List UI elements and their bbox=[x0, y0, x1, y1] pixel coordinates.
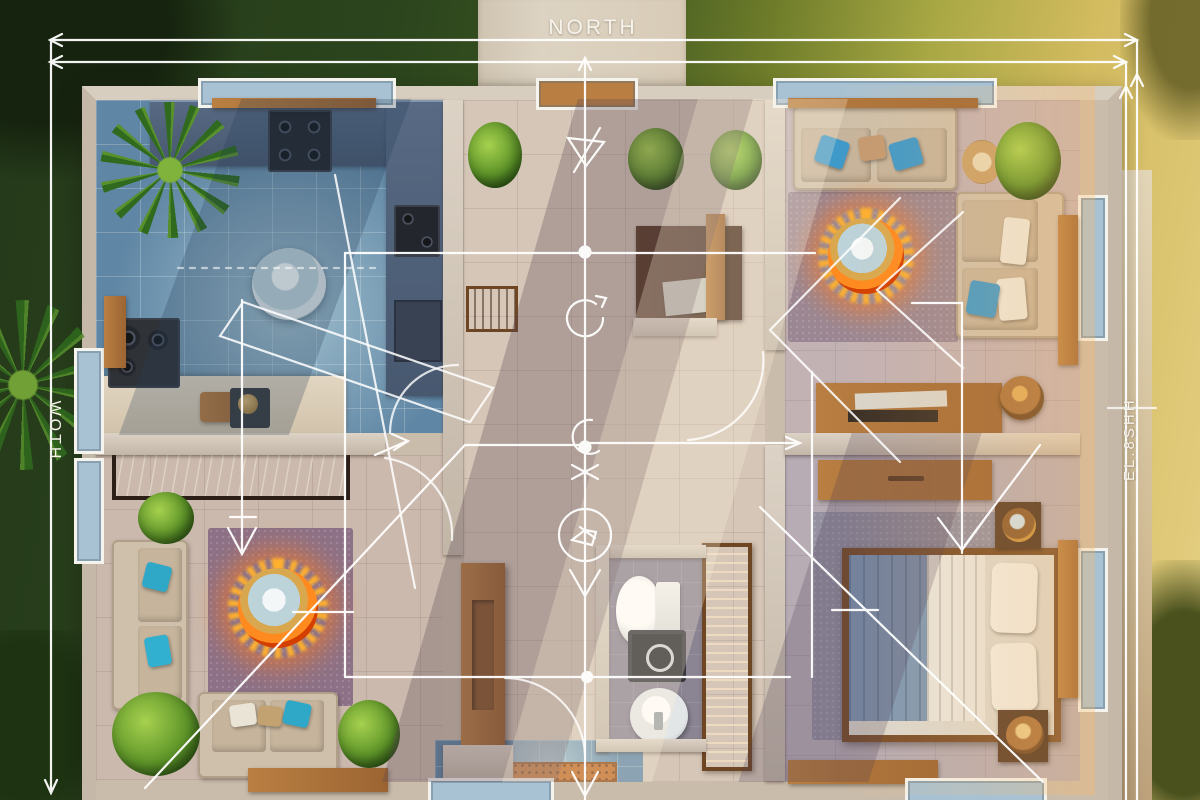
bed-sheet-fold bbox=[927, 555, 985, 721]
window-right-sitting bbox=[1078, 195, 1108, 341]
hall-door-upper bbox=[706, 214, 725, 320]
wall-stub-door bbox=[443, 745, 513, 781]
sitting-sofa-right bbox=[956, 192, 1064, 338]
hall-crate bbox=[466, 286, 518, 332]
window-top-kitchen-sill bbox=[212, 98, 376, 108]
wall-kitchen-living bbox=[96, 433, 385, 455]
white-pillow bbox=[229, 702, 258, 727]
blue-pillow bbox=[965, 280, 1000, 319]
wall-sitting-bedroom bbox=[785, 433, 1080, 455]
sitting-plant bbox=[995, 122, 1061, 200]
bronze-bowl bbox=[1000, 376, 1044, 420]
sitting-desk-slot bbox=[848, 410, 938, 422]
tan-pillow bbox=[257, 705, 283, 727]
door-panel-right-sitting bbox=[1058, 215, 1078, 365]
bathroom-mat-icon bbox=[646, 644, 674, 672]
bed-pillow-bottom bbox=[990, 642, 1038, 712]
window-top-sitting-sill bbox=[788, 98, 978, 108]
dresser-handle bbox=[888, 476, 924, 481]
hall-desk-paper bbox=[662, 278, 709, 316]
living-sofa-left bbox=[112, 540, 188, 710]
tan-pillow bbox=[857, 134, 886, 161]
window-bottom-living bbox=[428, 778, 554, 800]
teal-pillow bbox=[282, 700, 312, 729]
bed-pillow-top bbox=[990, 562, 1038, 634]
bathroom-wall-bottom bbox=[596, 739, 706, 752]
floor-plan-render: NORTH WOTH EL.8SHH bbox=[0, 0, 1200, 800]
door-left-kitchen bbox=[104, 296, 126, 368]
path-top bbox=[478, 0, 686, 88]
living-plant-bottom-left bbox=[112, 692, 200, 776]
hall-main-door-panel bbox=[472, 600, 494, 710]
bathroom-wall-top bbox=[596, 545, 706, 558]
sink-faucet bbox=[654, 712, 663, 730]
living-plant-top bbox=[138, 492, 194, 544]
hall-plant-1 bbox=[468, 122, 522, 188]
kitchen-right-module bbox=[394, 300, 442, 362]
nightstand-bottom-bowl bbox=[1006, 716, 1044, 754]
sitting-fire-table bbox=[828, 218, 904, 294]
window-left-upper bbox=[74, 348, 104, 454]
tray-bowl bbox=[238, 394, 258, 414]
window-bottom-bedroom bbox=[905, 778, 1047, 800]
stove-cooktop bbox=[268, 110, 332, 172]
nightstand-top-bowl bbox=[1002, 508, 1036, 542]
window-right-bedroom-frame bbox=[1058, 540, 1078, 698]
white-lumbar-pillow bbox=[996, 277, 1028, 321]
sitting-desk-paper bbox=[855, 390, 948, 409]
towel-slat-rack bbox=[702, 543, 752, 771]
window-left-lower bbox=[74, 458, 104, 564]
living-coffee-table bbox=[248, 768, 388, 792]
fire-pit-table bbox=[238, 568, 318, 648]
bathroom-wall-left bbox=[596, 545, 609, 752]
cooktop-right bbox=[394, 205, 440, 257]
white-lumbar-pillow bbox=[1000, 217, 1031, 265]
north-label: NORTH bbox=[528, 16, 658, 40]
wall-desk-alcove bbox=[633, 318, 717, 336]
sitting-sofa-top bbox=[793, 106, 957, 190]
wall-kitchen-hall bbox=[443, 100, 463, 555]
living-plant-bottom-right bbox=[338, 700, 400, 768]
living-console bbox=[112, 450, 350, 500]
wall-hall-sitting bbox=[765, 100, 785, 350]
window-right-bedroom bbox=[1078, 548, 1108, 712]
teal-pillow bbox=[144, 634, 173, 668]
hall-plant-2 bbox=[628, 128, 684, 190]
hall-plant-3 bbox=[710, 130, 762, 190]
bed-blanket bbox=[849, 555, 927, 721]
entry-door-top bbox=[536, 78, 638, 110]
living-sofa-bottom bbox=[198, 692, 338, 778]
east-dimension-label: EL.8SHH bbox=[1121, 401, 1143, 481]
kitchen-palm-plant bbox=[100, 102, 240, 238]
island-glass-bowl bbox=[252, 248, 326, 320]
wall-hall-bedroom bbox=[765, 445, 785, 781]
foliage-top-right bbox=[1120, 0, 1200, 140]
west-dimension-label: WOTH bbox=[41, 395, 63, 467]
